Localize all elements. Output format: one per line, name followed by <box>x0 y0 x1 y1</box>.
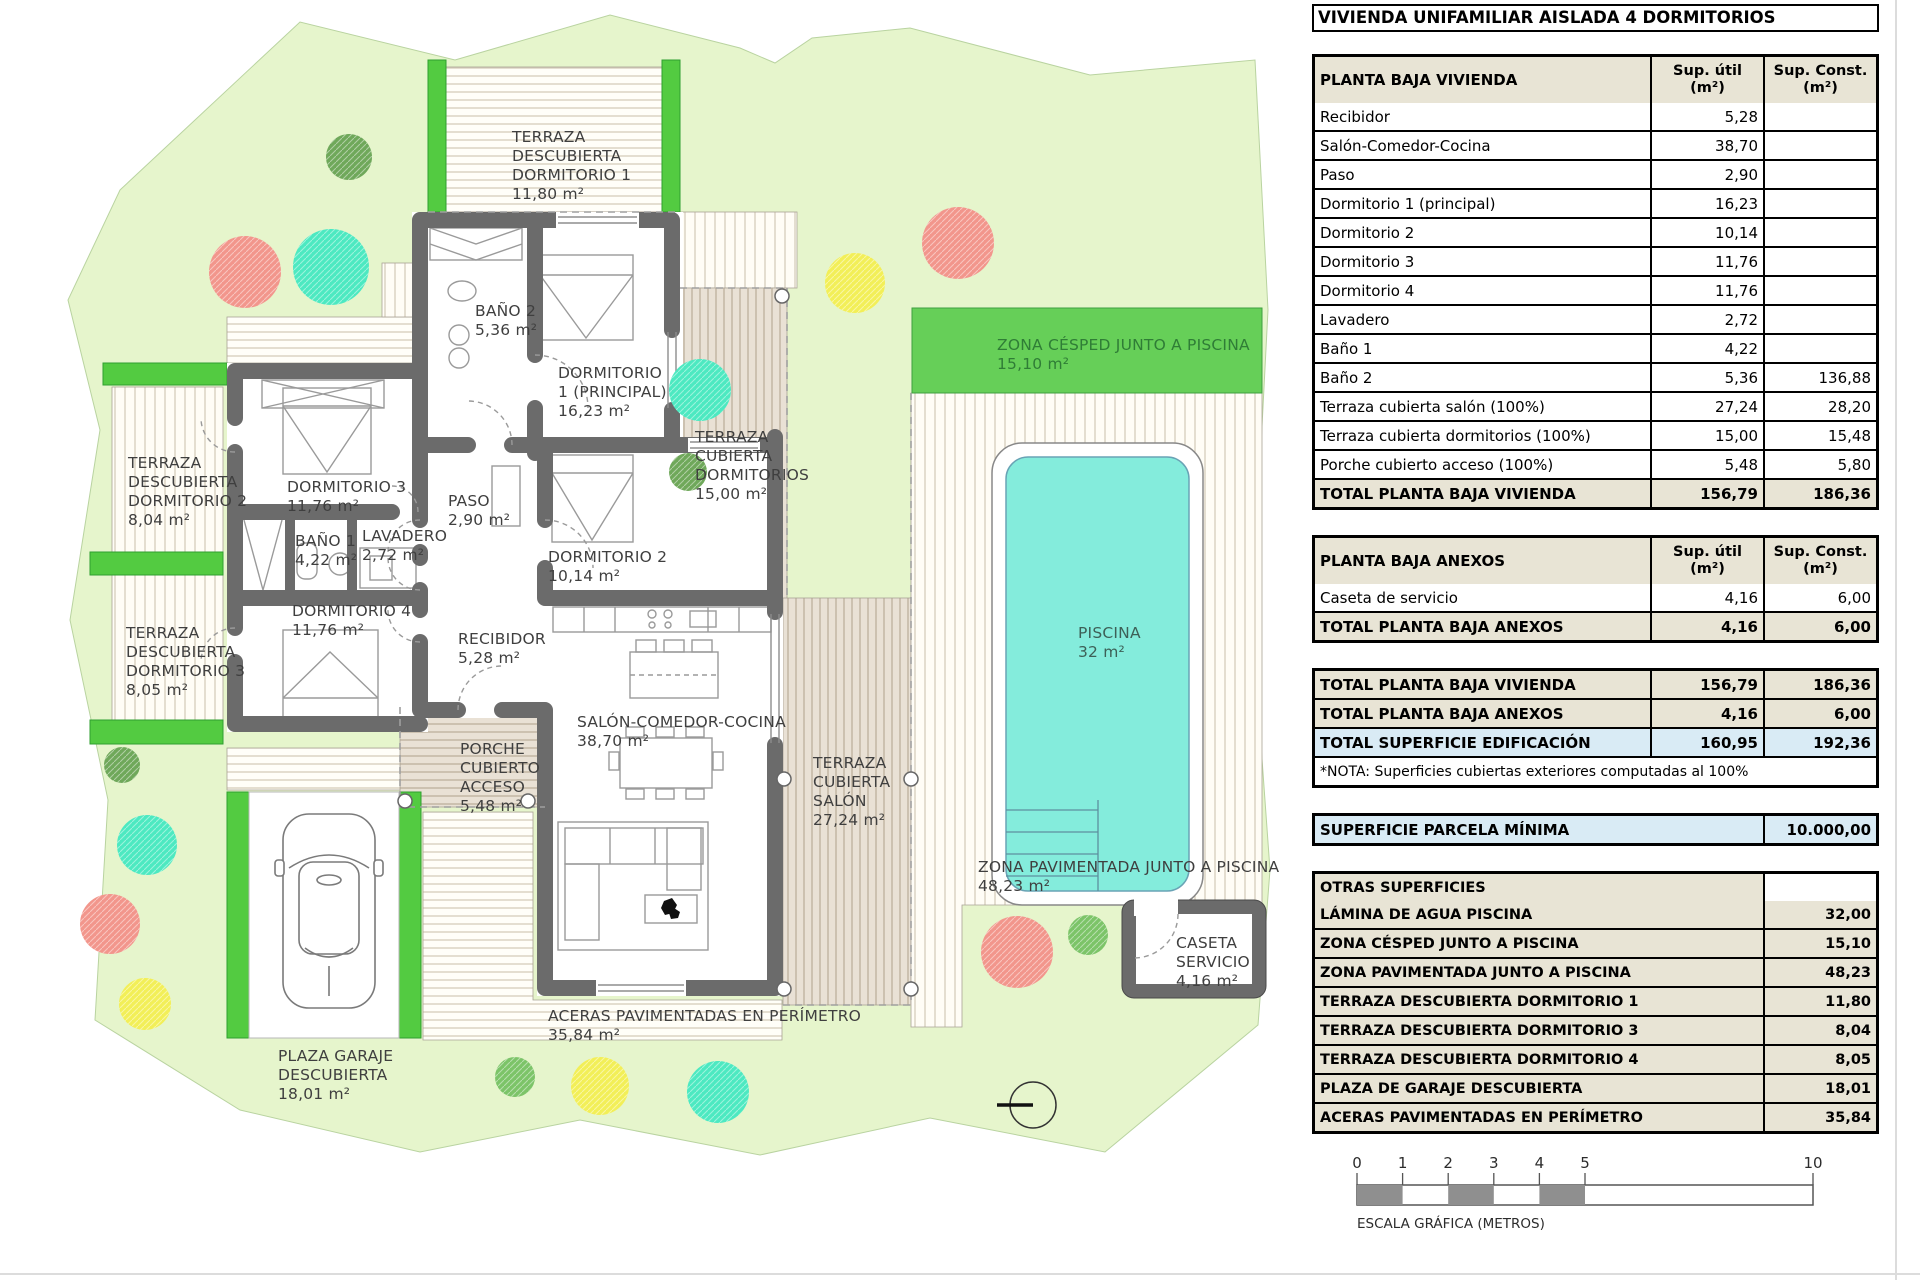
row-label: ZONA CÉSPED JUNTO A PISCINA <box>1315 928 1763 957</box>
sup-util-value: 156,79 <box>1650 478 1763 507</box>
sup-util-value: 5,48 <box>1650 449 1763 478</box>
table-row: TERRAZA DESCUBIERTA DORMITORIO 111,80 <box>1315 986 1876 1015</box>
table-row: Paso2,90 <box>1315 159 1876 188</box>
row-label: Terraza cubierta dormitorios (100%) <box>1315 420 1650 449</box>
acera-strip-garage <box>227 748 400 790</box>
row-label: Baño 1 <box>1315 333 1650 362</box>
sup-const-value <box>1763 159 1876 188</box>
pool <box>992 443 1203 905</box>
sup-const-value: 5,80 <box>1763 449 1876 478</box>
table-row: LÁMINA DE AGUA PISCINA32,00 <box>1315 901 1876 928</box>
sup-const-value <box>1763 333 1876 362</box>
table-row: TOTAL PLANTA BAJA VIVIENDA156,79186,36 <box>1315 478 1876 507</box>
sup-util-value: 10,14 <box>1650 217 1763 246</box>
nota-text: *NOTA: Superficies cubiertas exteriores … <box>1315 756 1876 785</box>
row-label: TOTAL PLANTA BAJA VIVIENDA <box>1315 478 1650 507</box>
row-label: ZONA PAVIMENTADA JUNTO A PISCINA <box>1315 957 1763 986</box>
tree-hatch <box>922 207 994 279</box>
table-header-label: PLANTA BAJA ANEXOS <box>1315 538 1650 584</box>
table-row: TERRAZA DESCUBIERTA DORMITORIO 48,05 <box>1315 1044 1876 1073</box>
sup-const-value <box>1763 275 1876 304</box>
row-label: TERRAZA DESCUBIERTA DORMITORIO 1 <box>1315 986 1763 1015</box>
surface-value: 11,80 <box>1763 986 1876 1015</box>
table-row: ZONA PAVIMENTADA JUNTO A PISCINA48,23 <box>1315 957 1876 986</box>
table-row: *NOTA: Superficies cubiertas exteriores … <box>1315 756 1876 785</box>
col-header-sup-util: Sup. útil(m²) <box>1650 57 1763 103</box>
table-row: TOTAL PLANTA BAJA VIVIENDA156,79186,36 <box>1315 671 1876 698</box>
otras-header-empty <box>1763 874 1876 901</box>
table-row: Terraza cubierta salón (100%)27,2428,20 <box>1315 391 1876 420</box>
acera-strip-left <box>227 317 418 363</box>
planter-strip <box>103 363 227 385</box>
surface-value: 48,23 <box>1763 957 1876 986</box>
summary-panel: VIVIENDA UNIFAMILIAR AISLADA 4 DORMITORI… <box>1312 4 1879 1159</box>
table-row: Dormitorio 311,76 <box>1315 246 1876 275</box>
table-row: Baño 14,22 <box>1315 333 1876 362</box>
row-label: Terraza cubierta salón (100%) <box>1315 391 1650 420</box>
col-header-sup-const: Sup. Const.(m²) <box>1763 57 1876 103</box>
car-icon <box>275 814 383 1008</box>
row-label: TOTAL PLANTA BAJA VIVIENDA <box>1315 671 1650 698</box>
row-label: Lavadero <box>1315 304 1650 333</box>
sup-util-value: 2,72 <box>1650 304 1763 333</box>
sup-const-value <box>1763 304 1876 333</box>
row-label: LÁMINA DE AGUA PISCINA <box>1315 901 1763 928</box>
sup-const-value: 186,36 <box>1763 478 1876 507</box>
table-header-row: PLANTA BAJA ANEXOS Sup. útil(m²) Sup. Co… <box>1315 538 1876 584</box>
scale-bar: 01234510 ESCALA GRÁFICA (METROS) <box>1352 1154 1822 1232</box>
sup-const-value: 192,36 <box>1763 727 1876 756</box>
sup-util-value: 15,00 <box>1650 420 1763 449</box>
row-label: Dormitorio 1 (principal) <box>1315 188 1650 217</box>
tree-hatch <box>495 1057 535 1097</box>
table-header-row: OTRAS SUPERFICIES <box>1315 874 1876 901</box>
acera-strip-top <box>680 212 797 288</box>
row-label: Salón-Comedor-Cocina <box>1315 130 1650 159</box>
table-row: TERRAZA DESCUBIERTA DORMITORIO 38,04 <box>1315 1015 1876 1044</box>
sup-const-value <box>1763 130 1876 159</box>
table-row: TOTAL SUPERFICIE EDIFICACIÓN160,95192,36 <box>1315 727 1876 756</box>
row-label: Caseta de servicio <box>1315 584 1650 611</box>
sup-util-value: 160,95 <box>1650 727 1763 756</box>
tree-hatch <box>669 359 731 421</box>
sup-const-value: 15,48 <box>1763 420 1876 449</box>
row-label: Dormitorio 2 <box>1315 217 1650 246</box>
parcela-label: SUPERFICIE PARCELA MÍNIMA <box>1315 816 1763 843</box>
sup-const-value <box>1763 188 1876 217</box>
row-label: TOTAL PLANTA BAJA ANEXOS <box>1315 611 1650 640</box>
sup-const-value <box>1763 103 1876 130</box>
sup-util-value: 11,76 <box>1650 246 1763 275</box>
sup-const-value: 6,00 <box>1763 611 1876 640</box>
table-row: Recibidor5,28 <box>1315 103 1876 130</box>
row-label: ACERAS PAVIMENTADAS EN PERÍMETRO <box>1315 1102 1763 1131</box>
planter-strip <box>662 60 680 212</box>
garage <box>249 792 399 1038</box>
table-header-row: PLANTA BAJA VIVIENDA Sup. útil(m²) Sup. … <box>1315 57 1876 103</box>
sup-util-value: 4,16 <box>1650 698 1763 727</box>
row-label: Recibidor <box>1315 103 1650 130</box>
tree-hatch <box>293 229 369 305</box>
tree-hatch <box>104 747 140 783</box>
tree-hatch <box>80 894 140 954</box>
surface-value: 15,10 <box>1763 928 1876 957</box>
planter-strip <box>90 552 223 575</box>
sup-const-value: 136,88 <box>1763 362 1876 391</box>
row-label: Dormitorio 4 <box>1315 275 1650 304</box>
sup-util-value: 16,23 <box>1650 188 1763 217</box>
row-label: Dormitorio 3 <box>1315 246 1650 275</box>
sup-const-value: 28,20 <box>1763 391 1876 420</box>
tree-hatch <box>571 1057 629 1115</box>
table-row: PLAZA DE GARAJE DESCUBIERTA18,01 <box>1315 1073 1876 1102</box>
table-row: Baño 25,36136,88 <box>1315 362 1876 391</box>
table-row: Salón-Comedor-Cocina38,70 <box>1315 130 1876 159</box>
table-row: Caseta de servicio4,166,00 <box>1315 584 1876 611</box>
row-label: Porche cubierto acceso (100%) <box>1315 449 1650 478</box>
table-planta-baja-anexos: PLANTA BAJA ANEXOS Sup. útil(m²) Sup. Co… <box>1312 535 1879 643</box>
table-row: Dormitorio 411,76 <box>1315 275 1876 304</box>
table-row: TOTAL PLANTA BAJA ANEXOS4,166,00 <box>1315 698 1876 727</box>
table-planta-baja-vivienda: PLANTA BAJA VIVIENDA Sup. útil(m²) Sup. … <box>1312 54 1879 510</box>
sup-util-value: 4,16 <box>1650 611 1763 640</box>
planter-strip <box>90 720 223 744</box>
surface-value: 18,01 <box>1763 1073 1876 1102</box>
table-header-label: PLANTA BAJA VIVIENDA <box>1315 57 1650 103</box>
tree-hatch <box>119 978 171 1030</box>
sup-util-value: 27,24 <box>1650 391 1763 420</box>
row-label: TOTAL PLANTA BAJA ANEXOS <box>1315 698 1650 727</box>
table-totales: TOTAL PLANTA BAJA VIVIENDA156,79186,36TO… <box>1312 668 1879 788</box>
sup-util-value: 2,90 <box>1650 159 1763 188</box>
garage-hedge <box>227 792 249 1038</box>
row-label: Baño 2 <box>1315 362 1650 391</box>
row-label: Paso <box>1315 159 1650 188</box>
sup-util-value: 156,79 <box>1650 671 1763 698</box>
surface-value: 8,05 <box>1763 1044 1876 1073</box>
tree-hatch <box>825 253 885 313</box>
tree-hatch <box>209 236 281 308</box>
page-title: VIVIENDA UNIFAMILIAR AISLADA 4 DORMITORI… <box>1312 4 1879 32</box>
row-label: TERRAZA DESCUBIERTA DORMITORIO 4 <box>1315 1044 1763 1073</box>
sup-const-value: 186,36 <box>1763 671 1876 698</box>
table-row: Dormitorio 1 (principal)16,23 <box>1315 188 1876 217</box>
parcela-value: 10.000,00 <box>1763 816 1876 843</box>
col-header-sup-const: Sup. Const.(m²) <box>1763 538 1876 584</box>
tree-hatch <box>326 134 372 180</box>
tree-hatch <box>687 1061 749 1123</box>
table-row: Lavadero2,72 <box>1315 304 1876 333</box>
sup-util-value: 4,16 <box>1650 584 1763 611</box>
sup-const-value: 6,00 <box>1763 698 1876 727</box>
table-row: Dormitorio 210,14 <box>1315 217 1876 246</box>
sup-util-value: 4,22 <box>1650 333 1763 362</box>
tree-hatch <box>117 815 177 875</box>
table-row: ZONA CÉSPED JUNTO A PISCINA15,10 <box>1315 928 1876 957</box>
planter-strip <box>428 60 446 212</box>
garage-hedge <box>399 792 421 1038</box>
table-row: Terraza cubierta dormitorios (100%)15,00… <box>1315 420 1876 449</box>
otras-header: OTRAS SUPERFICIES <box>1315 874 1763 901</box>
table-row: ACERAS PAVIMENTADAS EN PERÍMETRO35,84 <box>1315 1102 1876 1131</box>
sup-const-value <box>1763 246 1876 275</box>
surface-value: 8,04 <box>1763 1015 1876 1044</box>
sup-util-value: 5,28 <box>1650 103 1763 130</box>
sup-const-value: 6,00 <box>1763 584 1876 611</box>
row-label: PLAZA DE GARAJE DESCUBIERTA <box>1315 1073 1763 1102</box>
table-row: TOTAL PLANTA BAJA ANEXOS4,166,00 <box>1315 611 1876 640</box>
sup-util-value: 5,36 <box>1650 362 1763 391</box>
sup-const-value <box>1763 217 1876 246</box>
row-label: TERRAZA DESCUBIERTA DORMITORIO 3 <box>1315 1015 1763 1044</box>
table-row: SUPERFICIE PARCELA MÍNIMA 10.000,00 <box>1315 816 1876 843</box>
sup-util-value: 38,70 <box>1650 130 1763 159</box>
tree-hatch <box>981 916 1053 988</box>
table-row: Porche cubierto acceso (100%)5,485,80 <box>1315 449 1876 478</box>
tree-hatch <box>1068 915 1108 955</box>
sup-util-value: 11,76 <box>1650 275 1763 304</box>
col-header-sup-util: Sup. útil(m²) <box>1650 538 1763 584</box>
surface-value: 35,84 <box>1763 1102 1876 1131</box>
row-label: TOTAL SUPERFICIE EDIFICACIÓN <box>1315 727 1650 756</box>
surface-value: 32,00 <box>1763 901 1876 928</box>
table-parcela-minima: SUPERFICIE PARCELA MÍNIMA 10.000,00 <box>1312 813 1879 846</box>
table-otras-superficies: OTRAS SUPERFICIES LÁMINA DE AGUA PISCINA… <box>1312 871 1879 1134</box>
scale-bar-label: ESCALA GRÁFICA (METROS) <box>1357 1215 1545 1232</box>
